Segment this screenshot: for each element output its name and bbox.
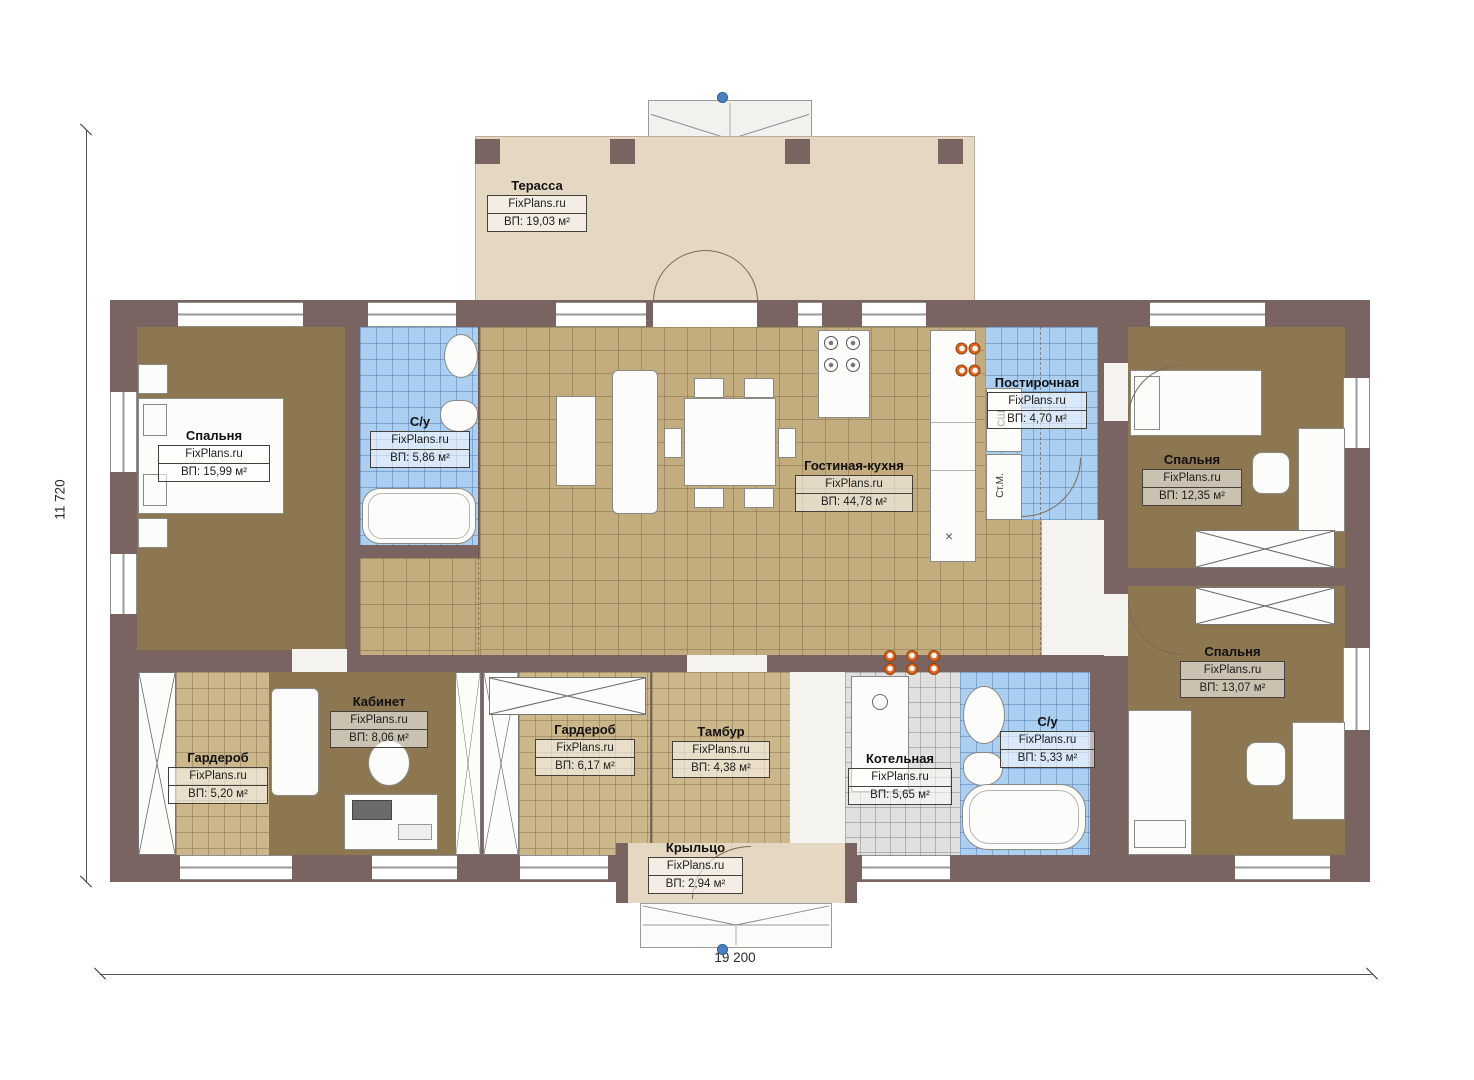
room-area: ВП: 4,70 м² (988, 411, 1086, 428)
desk (1298, 428, 1345, 532)
room-label-office: Кабинет FixPlans.ruВП: 8,06 м² (330, 694, 428, 748)
floor-plan-page: { "watermark": "FixPlans.ru", "dimension… (0, 0, 1474, 1080)
terrace-column (610, 139, 635, 164)
watermark: FixPlans.ru (1181, 662, 1284, 680)
desk (1292, 722, 1345, 820)
watermark: FixPlans.ru (649, 858, 742, 876)
wardrobe (489, 677, 646, 715)
room-name: Тамбур (672, 724, 770, 739)
heating-marker (884, 650, 896, 675)
room-name: С/у (1000, 714, 1095, 729)
watermark: FixPlans.ru (988, 393, 1086, 411)
watermark: FixPlans.ru (849, 769, 951, 787)
room-label-tambour: Тамбур FixPlans.ruВП: 4,38 м² (672, 724, 770, 778)
room-area: ВП: 8,06 м² (331, 730, 427, 747)
chair (778, 428, 796, 458)
chair (744, 378, 774, 398)
room-name: Спальня (158, 428, 270, 443)
washer-label: Ст.М. (995, 473, 1006, 498)
room-label-bathroom-top: С/у FixPlans.ruВП: 5,86 м² (370, 414, 470, 468)
sofa (612, 370, 658, 514)
chair (694, 378, 724, 398)
room-name: Постирочная (987, 375, 1087, 390)
room-area: ВП: 4,38 м² (673, 760, 769, 777)
room-area: ВП: 5,33 м² (1001, 750, 1094, 767)
room-label-living-kitchen: Гостиная-кухня FixPlans.ruВП: 44,78 м² (795, 458, 913, 512)
room-label-boiler: Котельная FixPlans.ruВП: 5,65 м² (848, 751, 952, 805)
heating-marker (956, 365, 981, 377)
watermark: FixPlans.ru (536, 740, 634, 758)
kitchen-island-divider (931, 470, 975, 471)
nightstand (138, 518, 168, 548)
chair (1252, 452, 1290, 494)
watermark: FixPlans.ru (169, 768, 267, 786)
pillow (1134, 820, 1186, 848)
watermark: FixPlans.ru (796, 476, 912, 494)
bathtub-inner (969, 790, 1079, 844)
stove-burner (824, 336, 838, 350)
window (368, 302, 456, 327)
beam-line (478, 327, 479, 655)
dimension-line-horizontal (100, 974, 1372, 975)
boiler-circle (872, 694, 888, 710)
porch-node-marker (717, 944, 728, 955)
room-living-kitchen-floor-ext (360, 558, 480, 655)
terrace-column (938, 139, 963, 164)
room-label-wardrobe-left: Гардероб FixPlans.ruВП: 5,20 м² (168, 750, 268, 804)
room-area: ВП: 5,20 м² (169, 786, 267, 803)
hallway-right-floor (1042, 520, 1104, 655)
room-label-porch: Крыльцо FixPlans.ruВП: 2,94 м² (648, 840, 743, 894)
window (1235, 855, 1330, 880)
stove-burner (846, 336, 860, 350)
room-name: Кабинет (330, 694, 428, 709)
room-label-wardrobe-middle: Гардероб FixPlans.ruВП: 6,17 м² (535, 722, 635, 776)
room-area: ВП: 15,99 м² (159, 464, 269, 481)
window (556, 302, 646, 327)
door-opening (687, 655, 767, 672)
kitchen-island-divider (931, 422, 975, 423)
window (862, 855, 950, 880)
window (862, 302, 926, 327)
window (372, 855, 457, 880)
watermark: FixPlans.ru (488, 196, 586, 214)
heating-marker (928, 650, 940, 675)
canopy-node-marker (717, 92, 728, 103)
room-name: Спальня (1142, 452, 1242, 467)
window (520, 855, 608, 880)
nightstand (138, 364, 168, 394)
room-name: С/у (370, 414, 470, 429)
chair (694, 488, 724, 508)
stove-burner (846, 358, 860, 372)
room-name: Крыльцо (648, 840, 743, 855)
keyboard (398, 824, 432, 840)
room-name: Гостиная-кухня (795, 458, 913, 473)
room-area: ВП: 13,07 м² (1181, 680, 1284, 697)
room-name: Терасса (487, 178, 587, 193)
sofa (271, 688, 319, 796)
watermark: FixPlans.ru (331, 712, 427, 730)
watermark: FixPlans.ru (673, 742, 769, 760)
window (110, 554, 137, 614)
room-area: ВП: 5,86 м² (371, 450, 469, 467)
porch-side-wall (845, 843, 857, 903)
wardrobe (1195, 587, 1335, 625)
room-area: ВП: 44,78 м² (796, 494, 912, 511)
door-opening (1104, 363, 1128, 421)
porch-steps (640, 903, 832, 948)
toilet (963, 752, 1003, 786)
dimension-width-label: 19 200 (660, 950, 810, 965)
window (798, 302, 822, 327)
watermark: FixPlans.ru (371, 432, 469, 450)
window (1343, 648, 1370, 730)
room-name: Котельная (848, 751, 952, 766)
room-area: ВП: 5,65 м² (849, 787, 951, 804)
chair (744, 488, 774, 508)
french-door-opening (653, 302, 757, 327)
door-opening (1104, 594, 1128, 656)
terrace-column (785, 139, 810, 164)
terrace-column (475, 139, 500, 164)
bathtub-inner (368, 493, 470, 539)
room-label-bedroom-left: Спальня FixPlans.ruВП: 15,99 м² (158, 428, 270, 482)
room-label-laundry: Постирочная FixPlans.ruВП: 4,70 м² (987, 375, 1087, 429)
window (1343, 378, 1370, 448)
room-area: ВП: 6,17 м² (536, 758, 634, 775)
chair (664, 428, 682, 458)
window (180, 855, 292, 880)
washbasin (963, 686, 1005, 744)
window (1150, 302, 1265, 327)
kitchen-sink-mark: × (945, 528, 953, 544)
chair (1246, 742, 1286, 786)
tv-stand (556, 396, 596, 486)
watermark: FixPlans.ru (1001, 732, 1094, 750)
room-label-terrace: Терасса FixPlans.ruВП: 19,03 м² (487, 178, 587, 232)
room-area: ВП: 2,94 м² (649, 876, 742, 893)
watermark: FixPlans.ru (159, 446, 269, 464)
room-label-bedroom-top-right: Спальня FixPlans.ruВП: 12,35 м² (1142, 452, 1242, 506)
heating-marker (906, 650, 918, 675)
room-name: Гардероб (535, 722, 635, 737)
closet (455, 672, 481, 855)
room-label-bathroom-bottom: С/у FixPlans.ruВП: 5,33 м² (1000, 714, 1095, 768)
room-name: Гардероб (168, 750, 268, 765)
door-opening (292, 649, 347, 672)
hallway-middle-floor (790, 672, 845, 855)
wardrobe (1195, 530, 1335, 568)
stove-burner (824, 358, 838, 372)
window (178, 302, 303, 327)
porch-steps-lines (641, 904, 831, 947)
washbasin (444, 334, 478, 378)
dimension-height-label: 11 720 (53, 455, 68, 545)
room-area: ВП: 19,03 м² (488, 214, 586, 231)
heating-marker (956, 343, 981, 355)
window (110, 392, 137, 472)
porch-side-wall (616, 843, 628, 903)
room-name: Спальня (1180, 644, 1285, 659)
printer (352, 800, 392, 820)
dining-table (684, 398, 776, 486)
room-area: ВП: 12,35 м² (1143, 488, 1241, 505)
room-label-bedroom-bottom-right: Спальня FixPlans.ruВП: 13,07 м² (1180, 644, 1285, 698)
watermark: FixPlans.ru (1143, 470, 1241, 488)
dimension-line-vertical (86, 130, 87, 882)
